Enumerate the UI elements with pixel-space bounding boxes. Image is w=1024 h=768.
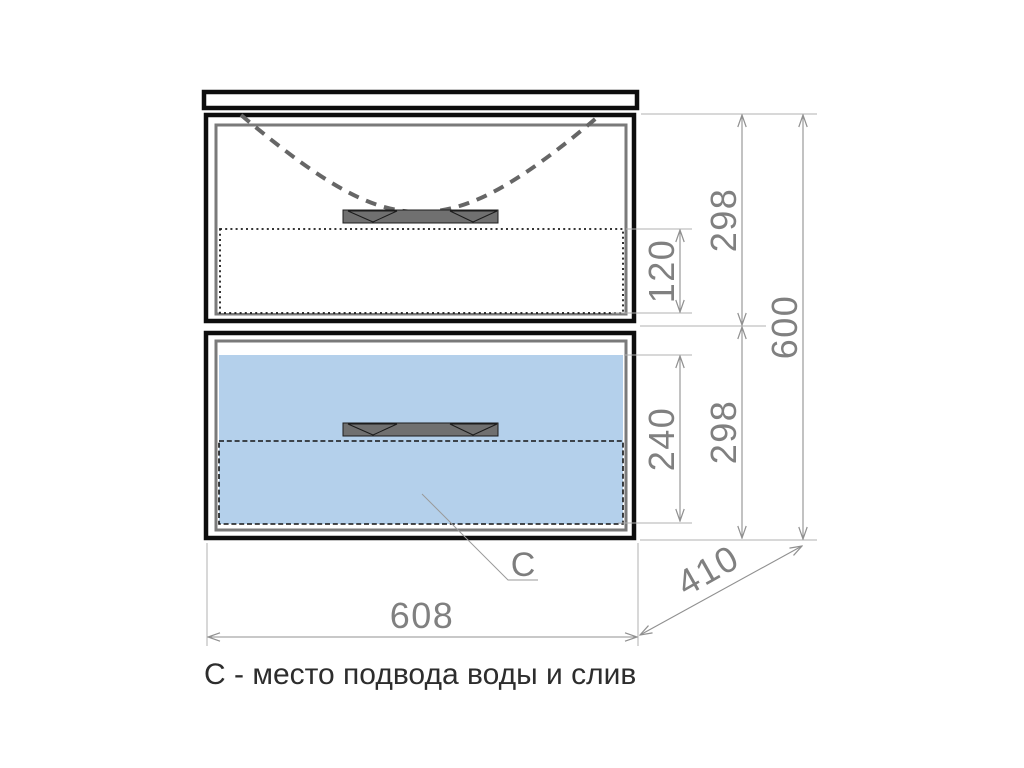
dimension-text-120: 120 (641, 239, 682, 304)
dimension-text-298-top: 298 (703, 188, 744, 253)
dimension-text-240: 240 (641, 407, 682, 472)
dimension-text-410: 410 (670, 536, 746, 603)
dimension-text-298-bottom: 298 (703, 400, 744, 465)
drawing-caption: С - место подвода воды и слив (204, 658, 636, 691)
dimension-text-600: 600 (764, 295, 805, 360)
plumbing-zone-highlight (219, 355, 623, 524)
countertop (204, 92, 637, 108)
vanity-cabinet-drawing: C 120 240 298 298 600 608 410 С - место … (0, 0, 1024, 768)
technical-drawing-canvas: C 120 240 298 298 600 608 410 С - место … (0, 0, 1024, 768)
leader-label-c: C (511, 546, 536, 584)
upper-storage-dotted-area (220, 229, 623, 313)
dimension-text-608: 608 (390, 595, 455, 636)
